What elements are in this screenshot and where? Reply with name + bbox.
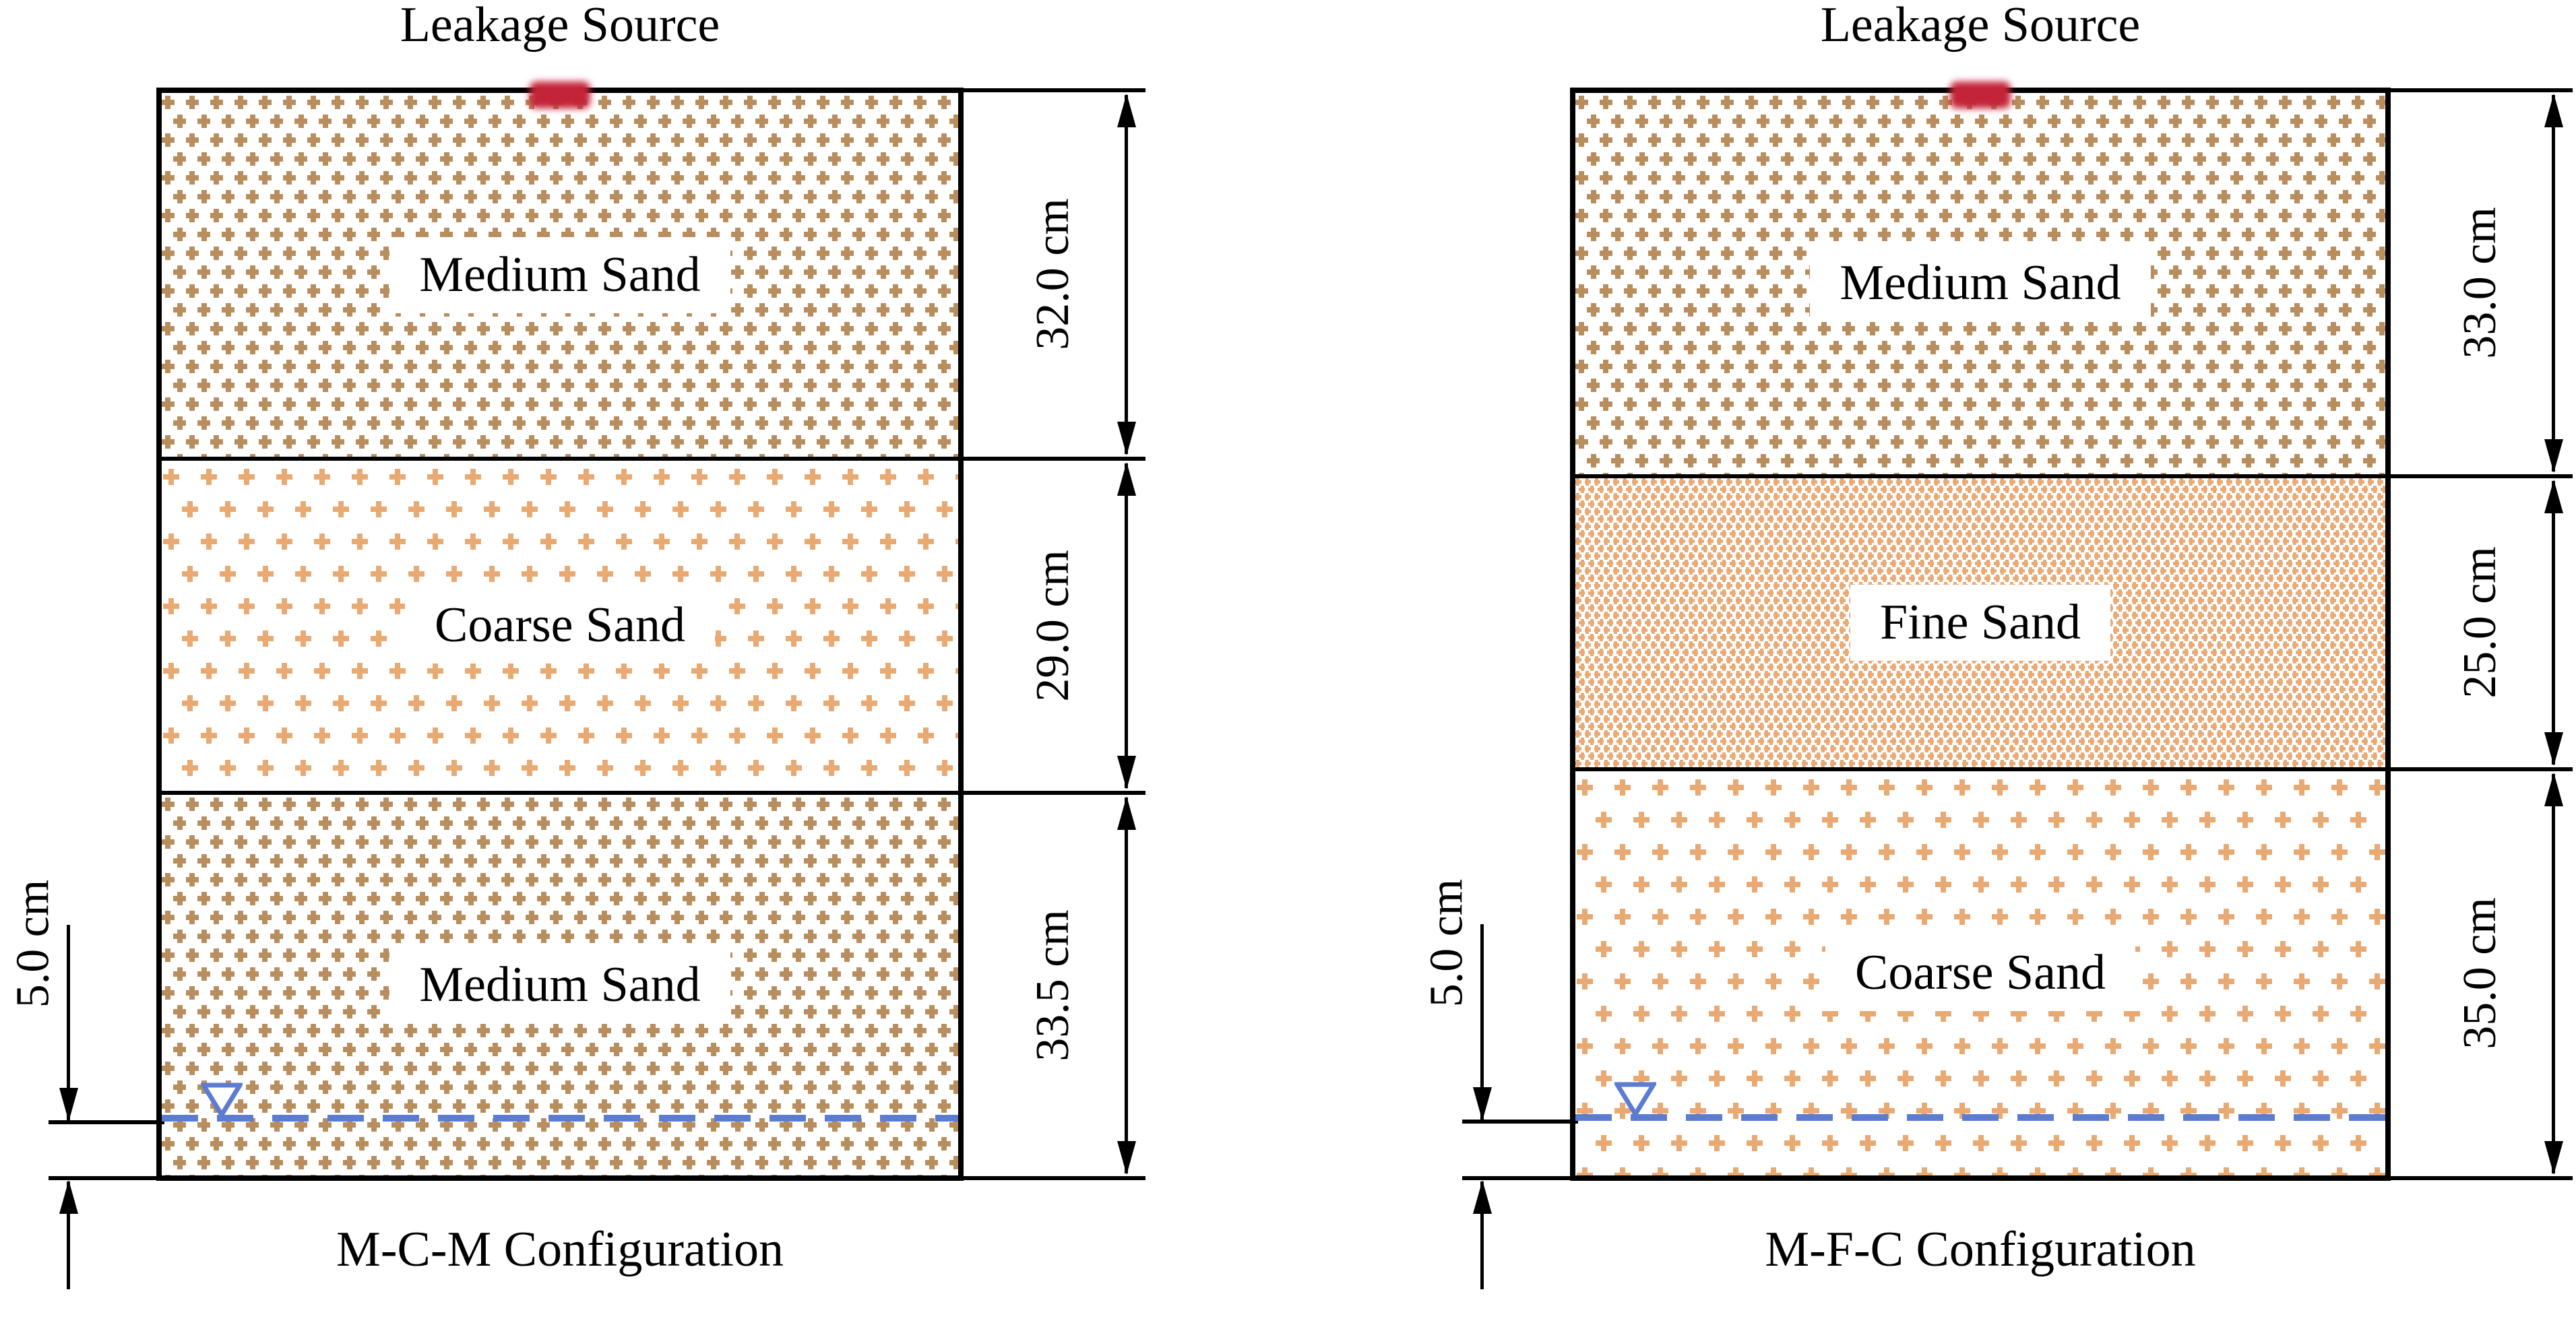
sand-layers: Medium Sand Fine Sand Coarse Sand bbox=[1575, 93, 2385, 1175]
dimension-row: 35.0 cm bbox=[2385, 767, 2573, 1180]
dimension-label: 33.5 cm bbox=[1026, 909, 1080, 1062]
dimension-arrow-icon bbox=[1125, 463, 1128, 788]
dimension-label: 33.0 cm bbox=[2453, 207, 2507, 360]
dimension-arrow-icon bbox=[1125, 95, 1128, 454]
dimension-row: 25.0 cm bbox=[2385, 474, 2573, 767]
dimension-arrow-icon bbox=[2552, 774, 2555, 1173]
layer-label: Coarse Sand bbox=[1825, 935, 2135, 1011]
leakage-source-title: Leakage Source bbox=[61, 0, 1059, 54]
water-table-line bbox=[1575, 1114, 2385, 1121]
water-depth-dimension: 5.0 cm bbox=[42, 88, 162, 1180]
dimension-arrow-icon bbox=[2552, 95, 2555, 472]
water-depth-label: 5.0 cm bbox=[6, 880, 60, 1008]
dimension-arrow-icon bbox=[2552, 481, 2555, 765]
sand-layers: Medium Sand Coarse Sand Medium Sand bbox=[162, 93, 958, 1175]
dimension-arrow-icon bbox=[1125, 798, 1128, 1173]
layer-coarse-sand: Coarse Sand bbox=[162, 457, 958, 790]
figure-canvas: Leakage Source Medium Sand Coarse Sand M… bbox=[0, 0, 2576, 1327]
dimension-row: 32.0 cm bbox=[958, 88, 1145, 457]
leakage-source-title: Leakage Source bbox=[1474, 0, 2486, 54]
dimension-row: 33.0 cm bbox=[2385, 88, 2573, 474]
dimension-row: 33.5 cm bbox=[958, 791, 1145, 1180]
layer-fine-sand: Fine Sand bbox=[1575, 474, 2385, 767]
thickness-dimension-column: 33.0 cm 25.0 cm 35.0 cm bbox=[2385, 88, 2573, 1180]
diagram-mcm-column: Leakage Source Medium Sand Coarse Sand M… bbox=[156, 88, 964, 1181]
dimension-label: 25.0 cm bbox=[2453, 547, 2507, 699]
dimension-arrow-down-icon bbox=[67, 925, 70, 1120]
configuration-caption: M-F-C Configuration bbox=[1474, 1221, 2486, 1279]
leakage-source-marker-icon bbox=[1950, 82, 2011, 108]
diagram-mfc-column: Leakage Source Medium Sand Fine Sand Coa… bbox=[1570, 88, 2391, 1181]
layer-label: Fine Sand bbox=[1850, 585, 2110, 661]
dimension-row: 29.0 cm bbox=[958, 457, 1145, 791]
thickness-dimension-column: 32.0 cm 29.0 cm 33.5 cm bbox=[958, 88, 1145, 1180]
layer-label: Coarse Sand bbox=[405, 587, 715, 663]
configuration-caption: M-C-M Configuration bbox=[61, 1221, 1059, 1279]
water-depth-label: 5.0 cm bbox=[1420, 879, 1474, 1008]
layer-label: Medium Sand bbox=[389, 947, 730, 1023]
water-depth-dimension: 5.0 cm bbox=[1455, 88, 1575, 1180]
layer-label: Medium Sand bbox=[1810, 245, 2150, 321]
layer-medium-sand-top: Medium Sand bbox=[162, 93, 958, 457]
dimension-label: 29.0 cm bbox=[1026, 550, 1080, 702]
dimension-arrow-down-icon bbox=[1480, 924, 1484, 1120]
dimension-label: 35.0 cm bbox=[2453, 898, 2507, 1050]
leakage-source-marker-icon bbox=[530, 82, 590, 108]
layer-medium-sand: Medium Sand bbox=[1575, 93, 2385, 474]
water-table-line bbox=[162, 1115, 958, 1122]
dimension-label: 32.0 cm bbox=[1026, 199, 1080, 351]
water-table-symbol-icon bbox=[1614, 1082, 1656, 1117]
layer-label: Medium Sand bbox=[389, 237, 730, 313]
water-table-symbol-icon bbox=[201, 1082, 243, 1118]
